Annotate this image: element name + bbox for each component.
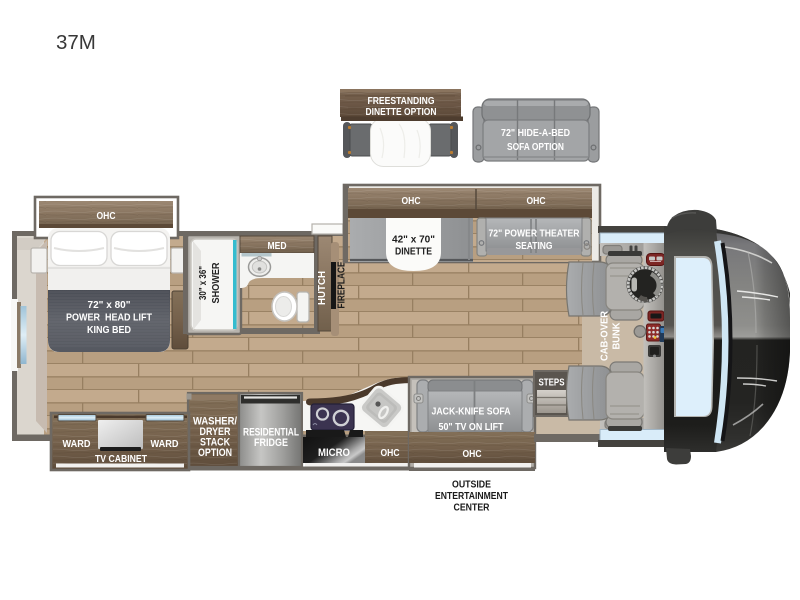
svg-text:MICRO: MICRO bbox=[318, 447, 350, 459]
svg-text:FREESTANDING: FREESTANDING bbox=[368, 96, 435, 107]
svg-text:FIREPLACE: FIREPLACE bbox=[337, 261, 348, 308]
svg-text:WARD: WARD bbox=[63, 438, 91, 450]
svg-text:72" HIDE-A-BED: 72" HIDE-A-BED bbox=[501, 128, 570, 139]
svg-text:OHC: OHC bbox=[97, 210, 116, 222]
svg-text:MED: MED bbox=[268, 241, 287, 252]
svg-text:STEPS: STEPS bbox=[539, 378, 565, 389]
svg-text:SHOWER: SHOWER bbox=[211, 262, 222, 304]
svg-text:DINETTE OPTION: DINETTE OPTION bbox=[366, 107, 437, 118]
svg-text:TV CABINET: TV CABINET bbox=[95, 453, 147, 465]
svg-text:HUTCH: HUTCH bbox=[316, 271, 328, 305]
svg-text:BUNK: BUNK bbox=[612, 322, 623, 350]
svg-text:OHC: OHC bbox=[463, 448, 482, 460]
svg-text:DINETTE: DINETTE bbox=[395, 246, 432, 258]
svg-text:SEATING: SEATING bbox=[516, 241, 553, 252]
svg-text:OHC: OHC bbox=[527, 195, 546, 207]
svg-text:FRIDGE: FRIDGE bbox=[254, 437, 288, 449]
svg-text:CENTER: CENTER bbox=[454, 503, 490, 514]
svg-text:72" x 80": 72" x 80" bbox=[88, 300, 131, 311]
svg-text:72" POWER THEATER: 72" POWER THEATER bbox=[489, 229, 580, 240]
svg-text:ENTERTAINMENT: ENTERTAINMENT bbox=[435, 491, 509, 502]
svg-text:OUTSIDE: OUTSIDE bbox=[452, 480, 491, 491]
svg-text:OPTION: OPTION bbox=[198, 447, 232, 459]
svg-text:SOFA OPTION: SOFA OPTION bbox=[507, 142, 564, 153]
svg-text:30" x 36": 30" x 36" bbox=[198, 266, 209, 300]
svg-text:OHC: OHC bbox=[381, 447, 400, 459]
svg-text:42" x 70": 42" x 70" bbox=[392, 234, 435, 246]
svg-text:37M: 37M bbox=[56, 31, 96, 54]
svg-text:WARD: WARD bbox=[151, 438, 179, 450]
svg-text:POWER HEAD LIFT: POWER HEAD LIFT bbox=[66, 313, 153, 324]
svg-text:JACK-KNIFE SOFA: JACK-KNIFE SOFA bbox=[432, 406, 511, 418]
svg-text:OHC: OHC bbox=[402, 195, 421, 207]
svg-text:KING BED: KING BED bbox=[87, 325, 131, 336]
svg-text:CAB-OVER: CAB-OVER bbox=[600, 310, 611, 361]
svg-text:50" TV ON LIFT: 50" TV ON LIFT bbox=[439, 421, 504, 433]
